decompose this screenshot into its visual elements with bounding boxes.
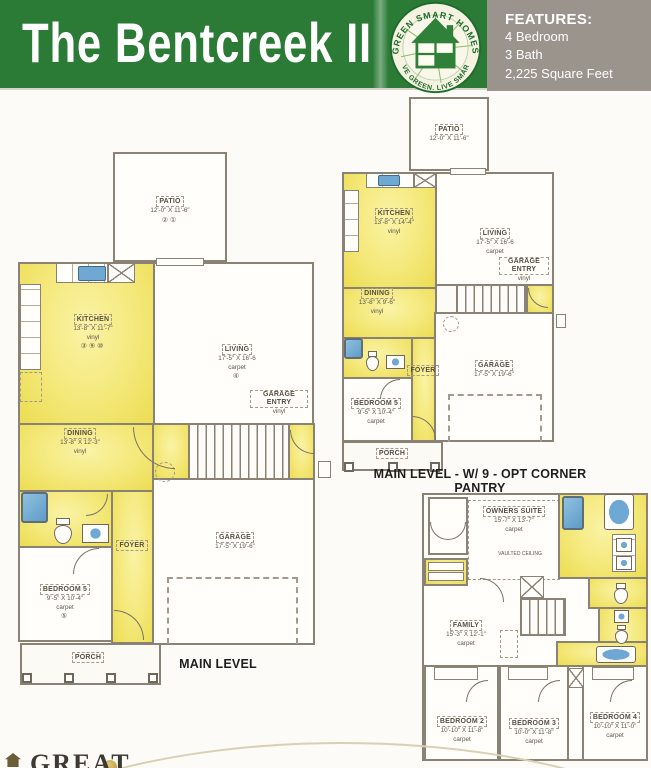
bath-sink: [82, 524, 109, 543]
page-title: The Bentcreek II: [22, 10, 372, 75]
toilet-bowl: [54, 525, 72, 544]
label-living: LIVING 17'-5" X 16'-6 carpet: [463, 228, 527, 256]
vanity-sink: [616, 556, 632, 570]
shower: [21, 492, 48, 523]
toilet: [614, 583, 628, 604]
green-smart-homes-logo-icon: GREEN SMART HOMES LIVE GREEN. LIVE SMART…: [389, 1, 482, 94]
kitchen-sink: [78, 266, 106, 281]
understair-closet: [500, 630, 518, 658]
bedroom3-closet: [508, 667, 548, 680]
porch-post: [22, 673, 32, 683]
water-heater: [443, 316, 459, 332]
label-bedroom2: BEDROOM 2 10'-10" X 11'-8" carpet: [427, 716, 497, 744]
window-seat-cushion: [428, 562, 464, 571]
label-patio: PATIO 12'-0" X 11'-6" ②①: [135, 196, 205, 225]
label-bedroom4: BEDROOM 4 10'-10" X 11'-0" carpet: [584, 712, 646, 740]
label-garage: GARAGE 17'-5" X 19'-6": [198, 532, 272, 552]
shower: [344, 338, 363, 359]
label-garage-entry: GARAGE ENTRY vinyl: [250, 390, 308, 416]
bath2-sink: [614, 610, 629, 623]
toilet: [366, 351, 379, 371]
features-heading: FEATURES:: [505, 11, 651, 28]
label-bedroom5: BEDROOM 5 9'-5" X 10'-4" carpet ⑤: [29, 584, 101, 621]
hall-closet-xbox: [568, 668, 584, 688]
corner-pantry-xbox: [414, 173, 436, 188]
bath-sink: [386, 355, 405, 369]
kitchen-counter-left: [20, 284, 41, 370]
staircase: [456, 284, 526, 314]
porch-post: [106, 673, 116, 683]
porch-post: [148, 673, 158, 683]
room-porch: [20, 643, 161, 685]
flyer-canvas: The Bentcreek II FEATURES: 4 Bedroom 3 B…: [0, 0, 651, 768]
ac-unit: [556, 314, 566, 328]
features-panel: FEATURES: 4 Bedroom 3 Bath 2,225 Square …: [487, 0, 651, 91]
linen-closet-xbox: [520, 576, 544, 598]
pantry-xbox: [108, 263, 135, 283]
label-foyer: FOYER: [405, 365, 441, 376]
staircase: [188, 423, 290, 480]
porch-post: [64, 673, 74, 683]
caption-main-level: MAIN LEVEL: [158, 657, 278, 671]
patio-slider-door: [156, 258, 204, 266]
label-living: LIVING 17'-5" X 16'-6 carpet ④: [200, 344, 274, 381]
footer-house-icon: [5, 753, 21, 767]
feature-sqft: 2,225 Square Feet: [505, 65, 651, 83]
label-vaulted-ceiling: VAULTED CEILING: [496, 552, 544, 558]
vanity-sink: [616, 538, 632, 552]
label-patio: PATIO 12'-0" X 11'-6": [415, 124, 483, 144]
label-porch: PORCH: [372, 448, 412, 459]
kitchen-counter-left: [344, 190, 359, 252]
label-owners-suite: OWNERS SUITE 15'-7" X 13'-7" carpet: [470, 506, 558, 534]
label-dining: DINING 13'-8" X 9'-6" vinyl: [346, 288, 408, 316]
label-family: FAMILY 15'-3" X 12'-1" carpet: [434, 620, 498, 648]
bedroom4-closet: [592, 667, 634, 680]
label-garage-entry: GARAGE ENTRY vinyl: [499, 257, 549, 283]
feature-bedrooms: 4 Bedroom: [505, 28, 651, 46]
caption-main-level-alt: MAIN LEVEL - W/ 9 - OPT CORNER PANTRY: [350, 467, 610, 495]
garage-door-dashed: [448, 394, 542, 442]
owners-tub: [604, 494, 634, 530]
label-dining: DINING 13'-8" X 12'-3" vinyl: [44, 428, 116, 456]
label-garage: GARAGE 17'-5" X 19'-6": [462, 360, 526, 380]
bedroom2-closet: [434, 667, 478, 680]
feature-baths: 3 Bath: [505, 46, 651, 64]
header-accent-stripe: [373, 0, 388, 88]
kitchen-sink: [378, 175, 400, 186]
staircase: [520, 598, 566, 636]
window-seat-cushion: [428, 572, 464, 581]
garage-door-dashed: [167, 577, 298, 644]
toilet: [54, 518, 72, 544]
owners-shower: [562, 496, 584, 530]
label-porch: PORCH: [63, 652, 113, 663]
appliance-dashed: [20, 372, 42, 402]
ac-unit: [318, 461, 331, 478]
label-bedroom5: BEDROOM 5 9'-5" X 10'-4" carpet: [344, 398, 408, 426]
label-kitchen: KITCHEN 13'-8" X 11'-7" vinyl ③⑨⑩: [55, 314, 131, 351]
label-kitchen: KITCHEN 13'-8" X 14'-4" vinyl: [362, 208, 426, 236]
toilet: [615, 625, 628, 644]
label-bedroom3: BEDROOM 3 10'-0" X 11'-8" carpet: [502, 718, 566, 746]
label-foyer: FOYER: [109, 540, 155, 551]
footer-partial-logo-text: GREAT: [30, 749, 131, 768]
patio-slider-door: [450, 168, 486, 175]
bath2-tub: [596, 646, 636, 663]
